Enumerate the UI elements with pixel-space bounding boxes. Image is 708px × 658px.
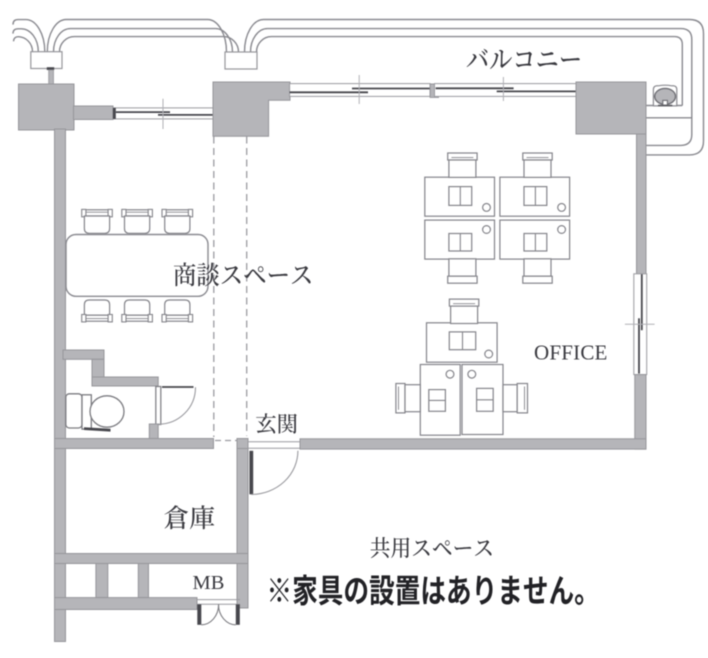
svg-text:OFFICE: OFFICE: [534, 341, 608, 365]
svg-text:MB: MB: [193, 572, 225, 594]
